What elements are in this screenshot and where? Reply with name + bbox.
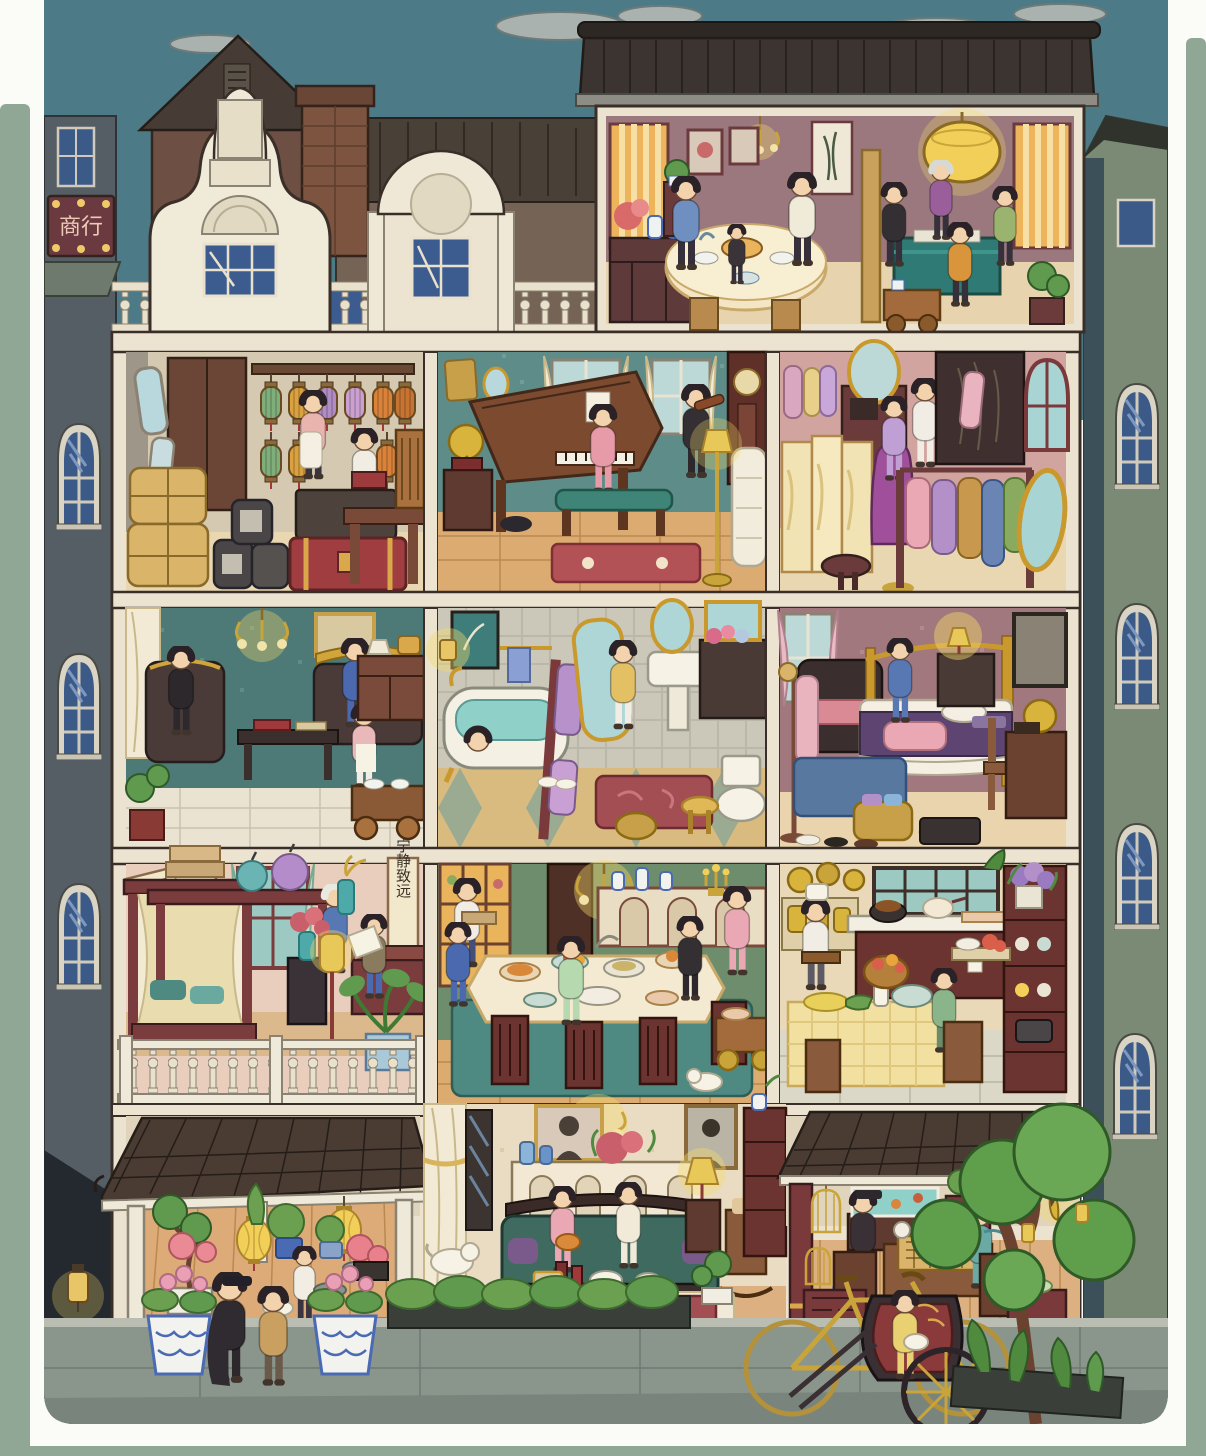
folding-screen bbox=[862, 150, 880, 322]
red-rug bbox=[552, 544, 700, 582]
mullion bbox=[424, 352, 438, 592]
dark-wardrobe bbox=[936, 352, 1024, 464]
basket bbox=[616, 813, 656, 839]
cat-black bbox=[500, 516, 532, 532]
chef-hat bbox=[806, 884, 828, 900]
banquet-dining-room[interactable] bbox=[438, 860, 774, 1104]
cap bbox=[222, 1276, 252, 1286]
study-parlor[interactable] bbox=[126, 608, 424, 848]
left-street-building: 商行 bbox=[44, 116, 120, 1424]
white-cat-rickshaw bbox=[904, 1334, 928, 1350]
arched-window bbox=[1026, 360, 1068, 450]
shop-sign: 商行 bbox=[48, 196, 114, 256]
folding-screen-cream bbox=[782, 436, 872, 572]
mullion bbox=[766, 864, 780, 1104]
orange-cat bbox=[556, 1234, 580, 1250]
stool bbox=[822, 555, 870, 577]
dressing-room[interactable] bbox=[780, 341, 1071, 594]
bath-vanity bbox=[700, 602, 766, 718]
floor-band-1 bbox=[112, 332, 1080, 352]
grandmother-room[interactable]: 宁静致远 bbox=[118, 838, 433, 1104]
tea-mahjong-room[interactable] bbox=[576, 22, 1100, 333]
wall-art bbox=[1014, 614, 1066, 686]
suitcase-bedroom bbox=[920, 818, 980, 844]
food-basket bbox=[864, 954, 908, 988]
parlor-window bbox=[466, 1110, 492, 1230]
wall-sconce bbox=[426, 628, 470, 672]
mullion bbox=[424, 864, 438, 1104]
hanging-clothes-left bbox=[784, 366, 836, 418]
illustration: 商行 bbox=[0, 0, 1206, 1456]
white-sofa bbox=[732, 448, 766, 566]
chinese-tile-roof bbox=[576, 22, 1100, 106]
hedge-trough bbox=[386, 1276, 690, 1328]
mullion bbox=[766, 352, 780, 592]
laundry-basket bbox=[854, 794, 912, 840]
shop-sign-text: 商行 bbox=[59, 215, 103, 240]
scroll-text: 宁静致远 bbox=[394, 838, 412, 899]
kitchen[interactable] bbox=[780, 850, 1066, 1104]
kitchen-chair bbox=[944, 1022, 982, 1082]
red-trunk bbox=[290, 538, 406, 590]
wicker-bales bbox=[128, 468, 208, 586]
window-right bbox=[1014, 124, 1070, 248]
floor-band-2 bbox=[112, 592, 1080, 608]
bathroom[interactable] bbox=[426, 600, 766, 848]
dutch-gable-small bbox=[368, 151, 514, 332]
flat-cap bbox=[856, 1190, 882, 1199]
scene-stage: 商行 bbox=[0, 0, 1206, 1456]
mullion bbox=[766, 608, 780, 848]
music-room[interactable] bbox=[438, 352, 766, 592]
bedroom[interactable] bbox=[778, 608, 1066, 849]
table-lamp bbox=[678, 1148, 726, 1252]
drum-lantern bbox=[918, 108, 1006, 196]
storage-room[interactable] bbox=[126, 352, 424, 592]
